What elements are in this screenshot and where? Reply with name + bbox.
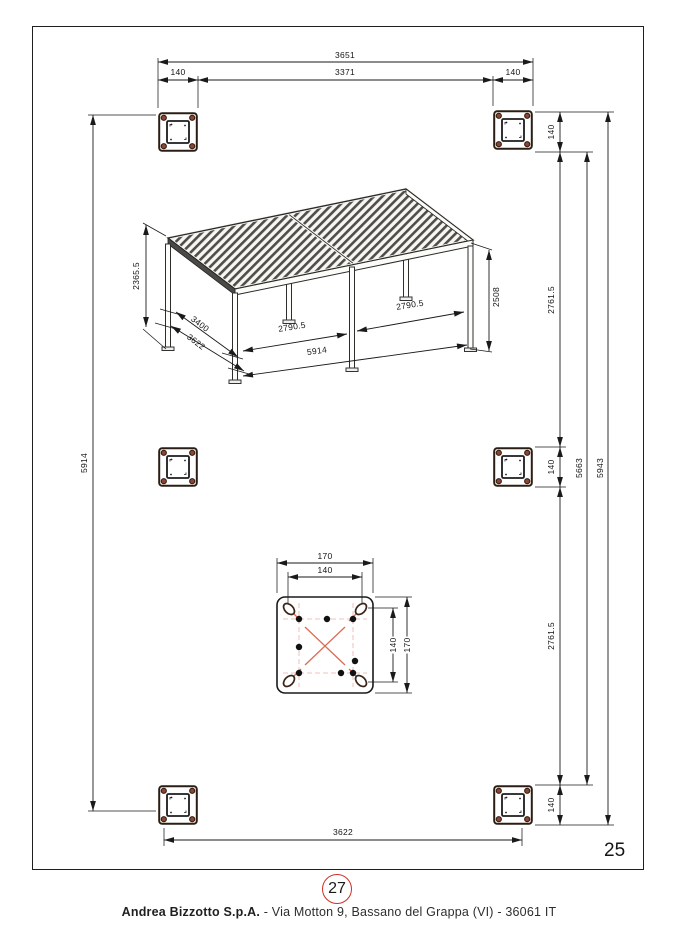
dim-label-plate-height: 170 xyxy=(403,636,412,653)
sheet-reference-badge: 27 xyxy=(322,874,352,904)
post-right-corner xyxy=(468,246,473,348)
dim-label-inner-width: 3371 xyxy=(335,68,355,77)
dim-label-bolt-height: 140 xyxy=(389,636,398,653)
dim-label-left-height: 5914 xyxy=(80,453,89,473)
louvered-roof xyxy=(168,189,473,295)
dim-label-bolt-width: 140 xyxy=(316,566,333,575)
dim-lines-top xyxy=(158,58,533,108)
dim-label-overall-height: 5943 xyxy=(596,458,605,478)
sheet-reference-number: 27 xyxy=(328,880,346,898)
dim-line-left xyxy=(88,115,156,811)
dim-label-bay-right-2: 2761.5 xyxy=(547,622,556,650)
dim-label-bay-right-1: 2761.5 xyxy=(547,286,556,314)
dim-label-overall-width: 3651 xyxy=(335,51,355,60)
dim-label-post-right-2: 140 xyxy=(547,459,556,474)
footer-address-text: - Via Motton 9, Bassano del Grappa (VI) … xyxy=(260,905,556,919)
anchor-plate-mid-right xyxy=(494,448,532,486)
dim-label-post-right-3: 140 xyxy=(547,797,556,812)
anchor-plate-top-right xyxy=(494,111,532,149)
dim-label-post-top-right: 140 xyxy=(505,68,520,77)
post-left-corner xyxy=(166,244,171,347)
anchor-plate-top-left xyxy=(159,113,197,151)
post-front-middle xyxy=(350,267,355,368)
dim-label-inner-height: 5663 xyxy=(575,458,584,478)
base-plate-detail xyxy=(277,558,412,693)
dim-label-post-right-1: 140 xyxy=(547,124,556,139)
dim-label-plate-width: 170 xyxy=(316,552,333,561)
dim-label-post-top-left: 140 xyxy=(170,68,185,77)
footer-address-line: Andrea Bizzotto S.p.A. - Via Motton 9, B… xyxy=(0,905,678,919)
dim-label-front-height: 2365.5 xyxy=(132,262,141,290)
page-number: 25 xyxy=(604,840,625,862)
footer-company-name: Andrea Bizzotto S.p.A. xyxy=(122,905,260,919)
anchor-plate-bottom-right xyxy=(494,786,532,824)
dim-label-bottom-width: 3622 xyxy=(333,828,353,837)
anchor-plate-bottom-left xyxy=(159,786,197,824)
anchor-plate-mid-left xyxy=(159,448,197,486)
dim-label-back-height: 2508 xyxy=(492,287,501,307)
